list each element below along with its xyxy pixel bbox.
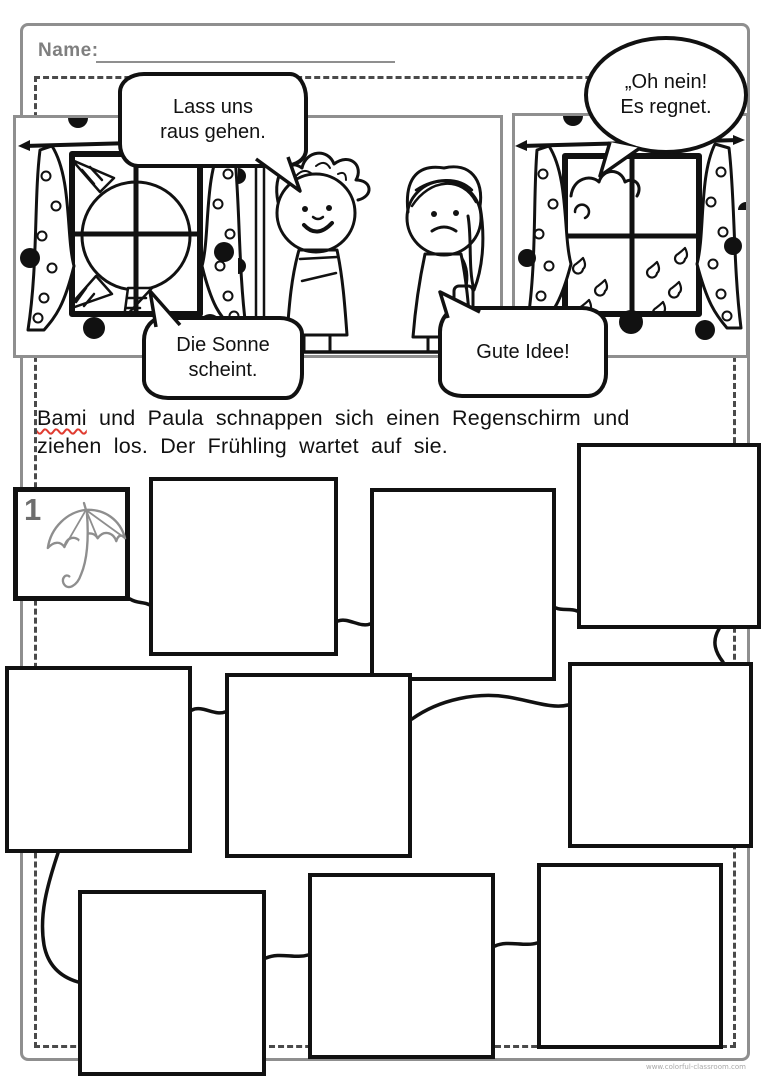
bubble-text-line: raus gehen. [160, 120, 266, 145]
bubble-tail [248, 155, 308, 195]
umbrella-icon [40, 500, 128, 598]
bubble-text-line: Es regnet. [620, 95, 711, 120]
sequence-box-7[interactable] [5, 666, 192, 853]
sequence-box-3[interactable] [370, 488, 556, 681]
story-line-1-rest: und Paula schnappen sich einen Regenschi… [87, 406, 630, 430]
sequence-box-5[interactable] [568, 662, 753, 848]
bubble-text-line: „Oh nein! [625, 70, 707, 95]
bubble-text-line: Die Sonne [176, 333, 269, 358]
speech-bubble-oh-nein: „Oh nein! Es regnet. [584, 36, 748, 154]
speech-bubble-lass-uns: Lass uns raus gehen. [118, 72, 308, 168]
story-line-1: Bami und Paula schnappen sich einen Rege… [37, 404, 737, 432]
sequence-box-8[interactable] [78, 890, 266, 1076]
bubble-tail [596, 140, 652, 180]
sequence-start-box: 1 [13, 487, 130, 601]
speech-bubble-die-sonne: Die Sonne scheint. [142, 316, 304, 400]
speech-bubble-gute-idee: Gute Idee! [438, 306, 608, 398]
bubble-text-line: scheint. [189, 358, 258, 383]
sequence-box-6[interactable] [225, 673, 412, 858]
bubble-text-line: Gute Idee! [476, 340, 569, 365]
sequence-box-9[interactable] [308, 873, 495, 1059]
sequence-number: 1 [24, 494, 41, 526]
bubble-tail [146, 289, 194, 329]
bubble-tail [438, 290, 490, 322]
sequence-box-2[interactable] [149, 477, 338, 656]
sequence-box-4[interactable] [577, 443, 761, 629]
story-marked-word: Bami [37, 406, 87, 430]
bubble-text-line: Lass uns [173, 95, 253, 120]
sequence-box-10[interactable] [537, 863, 723, 1049]
worksheet-page: Name: [0, 0, 768, 1086]
